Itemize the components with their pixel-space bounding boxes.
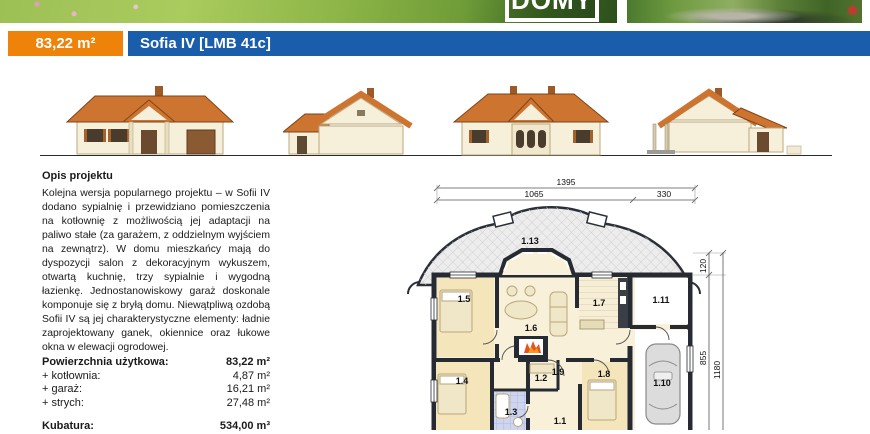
dim-depth-total: 1180 [712, 361, 722, 380]
dim-width-total: 1395 [557, 178, 576, 187]
photo-strip: DOMY [0, 0, 870, 23]
project-title-bar: Sofia IV [LMB 41c] [128, 31, 870, 56]
plan-house [431, 250, 693, 430]
room-label: 1.10 [653, 378, 671, 388]
dim-depth-main: 855 [698, 351, 708, 365]
dim-depth-bay: 120 [698, 259, 708, 273]
dim-width-right: 330 [657, 189, 671, 199]
area-row-attic: + strych: 27,48 m² [42, 397, 270, 411]
brochure-page: { "header": { "logo_text": "DOMY", "area… [0, 0, 870, 430]
area-value: 83,22 m² [226, 356, 270, 370]
elevation-garden [452, 84, 610, 157]
room-label: 1.7 [593, 298, 606, 308]
area-value: 4,87 m² [233, 370, 270, 384]
area-label: Kubatura: [42, 420, 94, 434]
brand-logo: DOMY [505, 0, 599, 22]
area-value: 27,48 m² [227, 397, 270, 411]
room-label: 1.6 [525, 323, 538, 333]
area-row-garage: + garaż: 16,21 m² [42, 383, 270, 397]
room-label: 1.1 [554, 416, 567, 426]
room-label: 1.11 [652, 295, 669, 305]
area-row-boiler: + kotłownia: 4,87 m² [42, 370, 270, 384]
area-value: 16,21 m² [227, 383, 270, 397]
fireplace-icon [514, 336, 548, 358]
room-label: 1.8 [598, 369, 611, 379]
area-value: 534,00 m³ [220, 420, 270, 434]
room-label-terrace: 1.13 [521, 236, 539, 246]
area-label: Powierzchnia użytkowa: [42, 356, 169, 370]
elevation-side-left [645, 88, 807, 156]
room-label: 1.2 [535, 373, 548, 383]
description-paragraph: Kolejna wersja popularnego projektu – w … [42, 187, 270, 355]
room-label: 1.3 [505, 407, 518, 417]
dim-width-left: 1065 [525, 189, 544, 199]
floor-plan: 1395 1065 330 1.13 [398, 178, 770, 430]
area-label: + strych: [42, 397, 84, 411]
description-heading: Opis projektu [42, 170, 270, 182]
area-label: + garaż: [42, 383, 82, 397]
project-title: Sofia IV [LMB 41c] [140, 35, 271, 52]
areas-table: Powierzchnia użytkowa: 83,22 m² + kotłow… [42, 356, 270, 434]
area-badge-text: 83,22 m² [35, 35, 95, 52]
brand-logo-text: DOMY [511, 0, 593, 13]
area-row-total: Powierzchnia użytkowa: 83,22 m² [42, 356, 270, 370]
plan-dims-right: 120 855 1180 [693, 250, 726, 430]
room-label: 1.4 [456, 376, 469, 386]
elevation-front [65, 84, 235, 156]
room-label: 1.5 [458, 294, 471, 304]
room-label: 1.9 [552, 367, 565, 377]
area-row-kubatura: Kubatura: 534,00 m³ [42, 420, 270, 434]
area-badge: 83,22 m² [8, 31, 123, 56]
plan-dims-top: 1395 1065 330 [434, 178, 698, 204]
elevation-side-right [283, 86, 415, 156]
area-label: + kotłownia: [42, 370, 100, 384]
photo-garden-pond [627, 0, 862, 23]
